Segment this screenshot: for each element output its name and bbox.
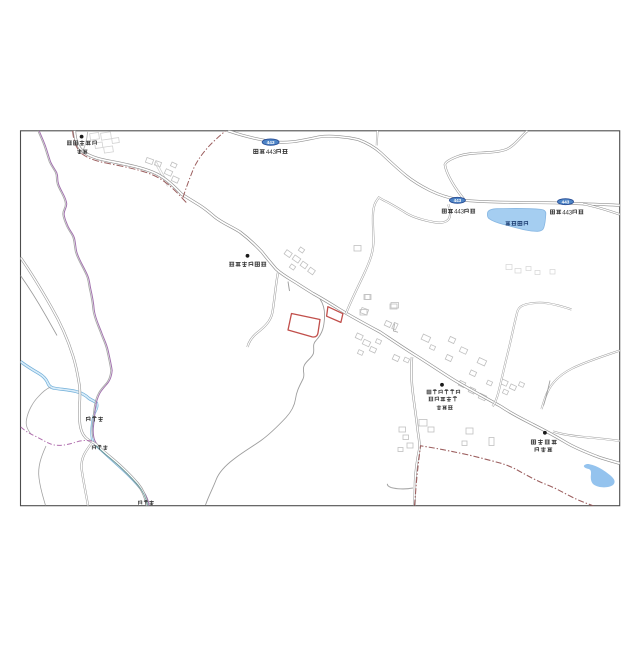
- svg-text:443: 443: [562, 200, 570, 205]
- svg-text:443: 443: [266, 149, 277, 156]
- svg-text:443: 443: [454, 209, 464, 216]
- svg-text:443: 443: [562, 209, 572, 216]
- svg-text:443: 443: [454, 198, 462, 203]
- svg-text:443: 443: [267, 140, 275, 146]
